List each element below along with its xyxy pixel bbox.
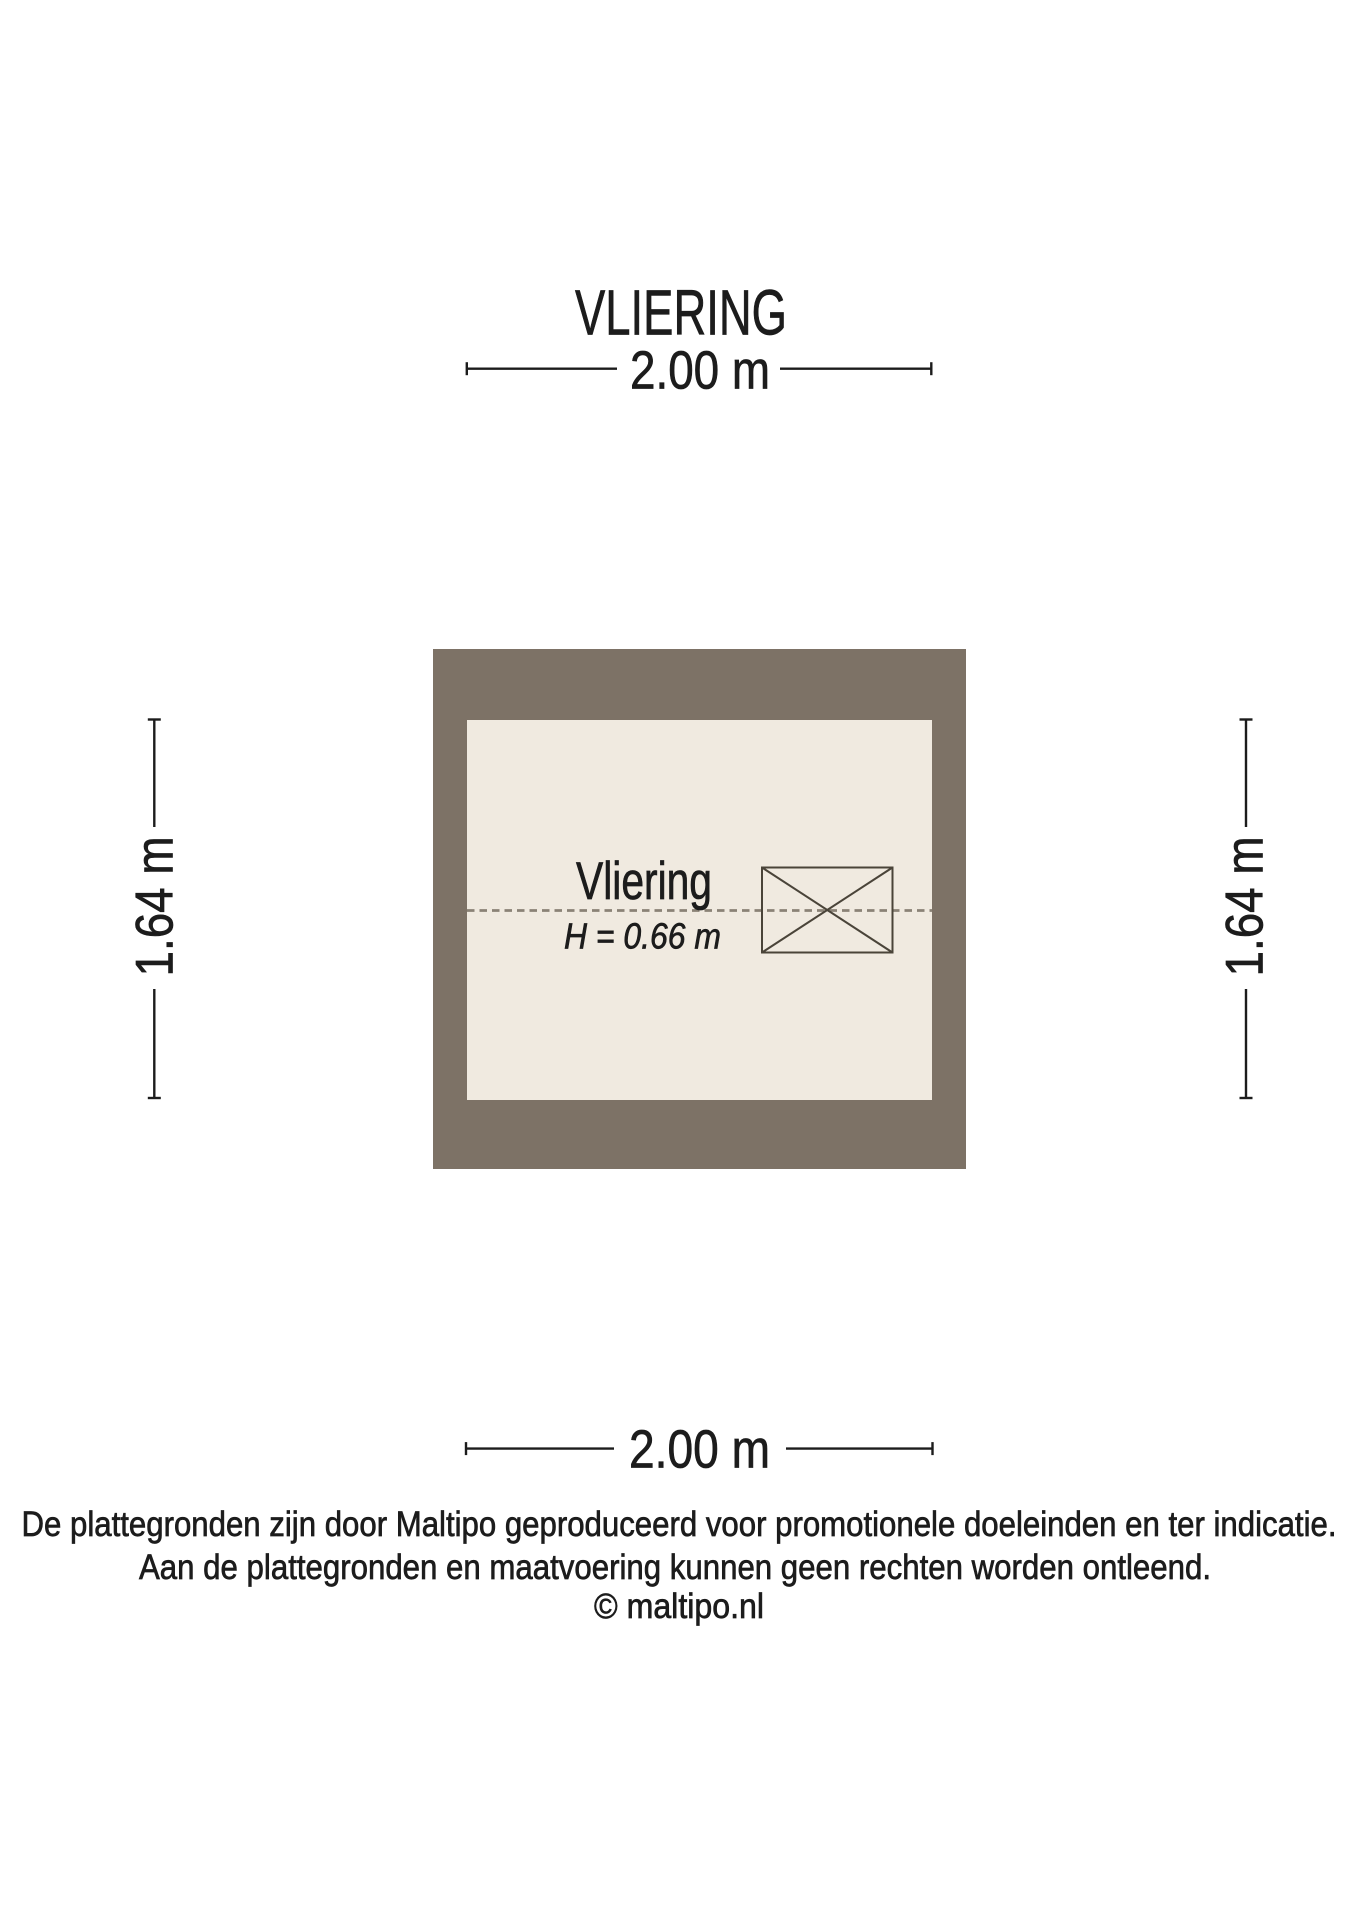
svg-text:2.00 m: 2.00 m <box>629 1419 770 1479</box>
svg-text:De plattegronden zijn door Mal: De plattegronden zijn door Maltipo gepro… <box>22 1505 1337 1544</box>
svg-text:Vliering: Vliering <box>576 852 712 911</box>
svg-text:1.64 m: 1.64 m <box>125 837 184 977</box>
svg-text:2.00 m: 2.00 m <box>630 341 770 401</box>
svg-text:H = 0.66 m: H = 0.66 m <box>564 916 721 957</box>
svg-text:1.64 m: 1.64 m <box>1216 837 1275 977</box>
svg-text:© maltipo.nl: © maltipo.nl <box>594 1587 764 1626</box>
svg-text:VLIERING: VLIERING <box>575 277 787 349</box>
svg-text:Aan de plattegronden en maatvo: Aan de plattegronden en maatvoering kunn… <box>139 1548 1211 1587</box>
